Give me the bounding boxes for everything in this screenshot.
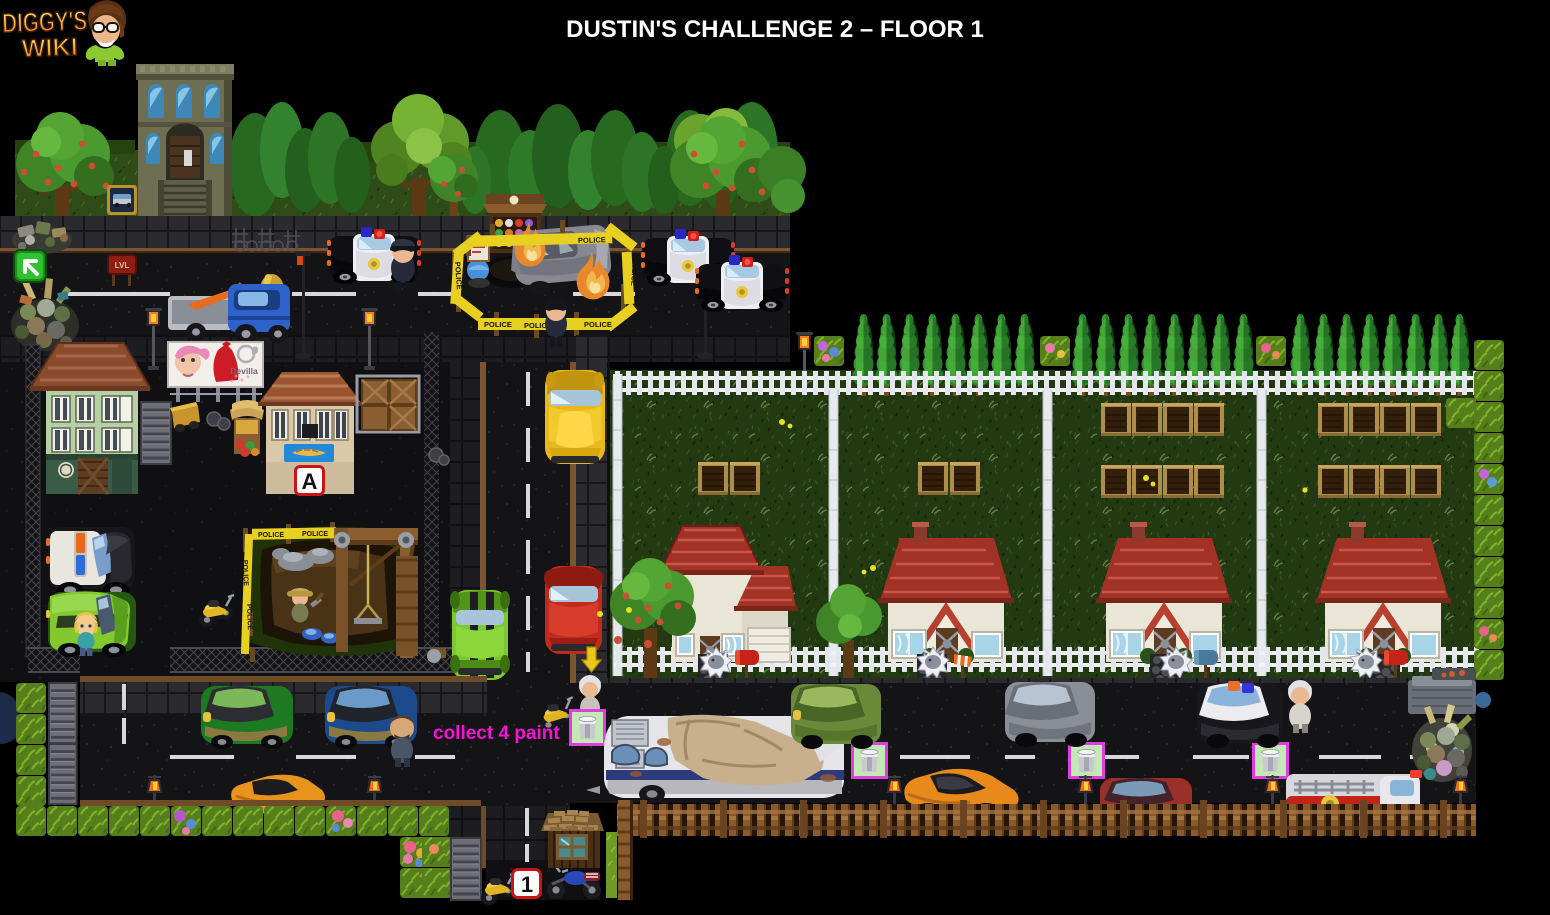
svg-text:POLICE: POLICE xyxy=(258,532,284,539)
svg-text:DUSTIN'S CHALLENGE 2 – FLOOR 1: DUSTIN'S CHALLENGE 2 – FLOOR 1 xyxy=(566,16,984,43)
svg-text:POLICE: POLICE xyxy=(302,531,328,538)
svg-text:POLICE: POLICE xyxy=(241,560,249,587)
svg-text:LVL: LVL xyxy=(115,261,130,270)
svg-text:collect 4 paint: collect 4 paint xyxy=(433,723,560,744)
svg-text:Devilla: Devilla xyxy=(230,366,258,376)
svg-text:A: A xyxy=(302,469,318,494)
svg-text:WIKI: WIKI xyxy=(21,33,78,63)
svg-text:POLICE: POLICE xyxy=(584,320,612,329)
svg-text:POLICE: POLICE xyxy=(578,235,606,245)
svg-text:POLICE: POLICE xyxy=(245,604,253,631)
svg-text:1: 1 xyxy=(521,872,533,897)
svg-text:POLICE: POLICE xyxy=(484,320,512,329)
